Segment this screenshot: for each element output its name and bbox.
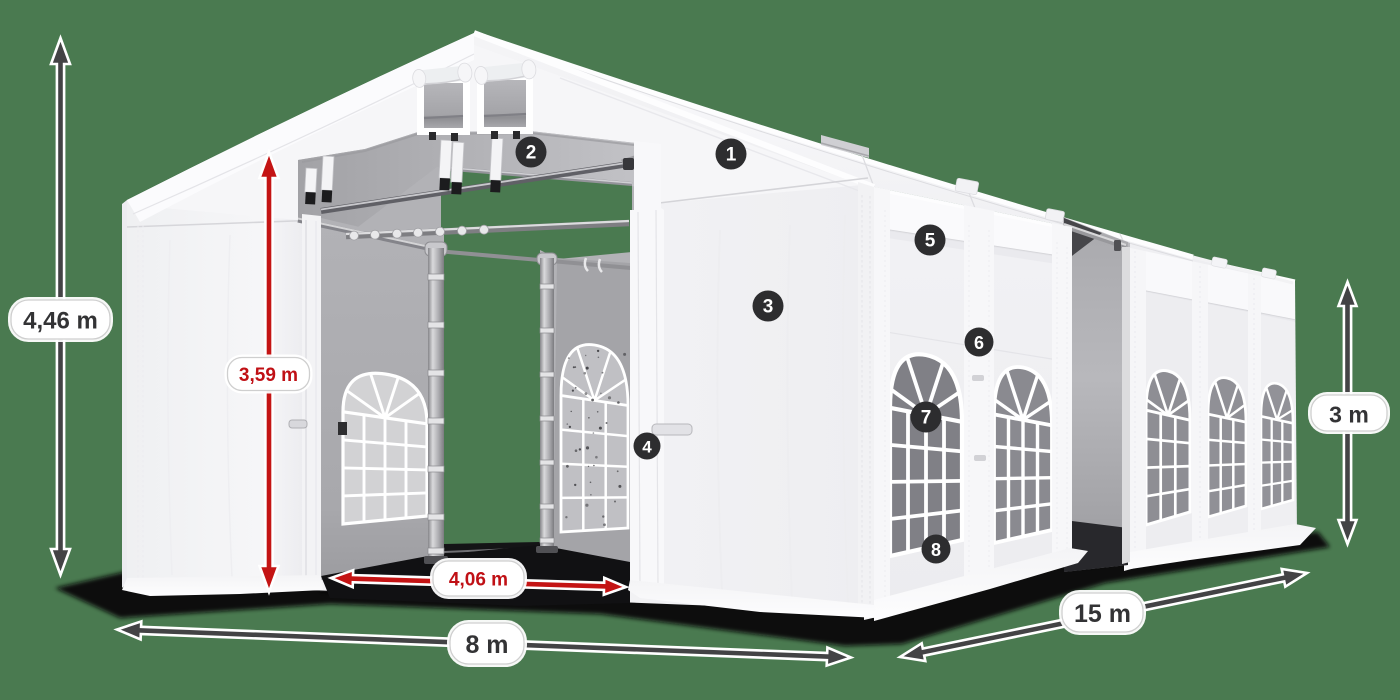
svg-text:8 m: 8 m: [465, 631, 508, 659]
svg-text:4,46 m: 4,46 m: [23, 308, 98, 335]
svg-text:4: 4: [642, 438, 652, 457]
svg-text:8: 8: [931, 540, 941, 560]
svg-text:7: 7: [921, 408, 932, 429]
svg-text:15 m: 15 m: [1074, 600, 1131, 628]
svg-text:3,59 m: 3,59 m: [239, 365, 298, 386]
svg-text:3: 3: [763, 297, 774, 318]
svg-text:6: 6: [974, 333, 984, 353]
svg-text:4,06 m: 4,06 m: [449, 570, 508, 591]
svg-text:5: 5: [925, 231, 936, 252]
svg-text:1: 1: [726, 145, 737, 166]
svg-text:2: 2: [526, 143, 537, 164]
svg-text:3 m: 3 m: [1329, 402, 1369, 428]
